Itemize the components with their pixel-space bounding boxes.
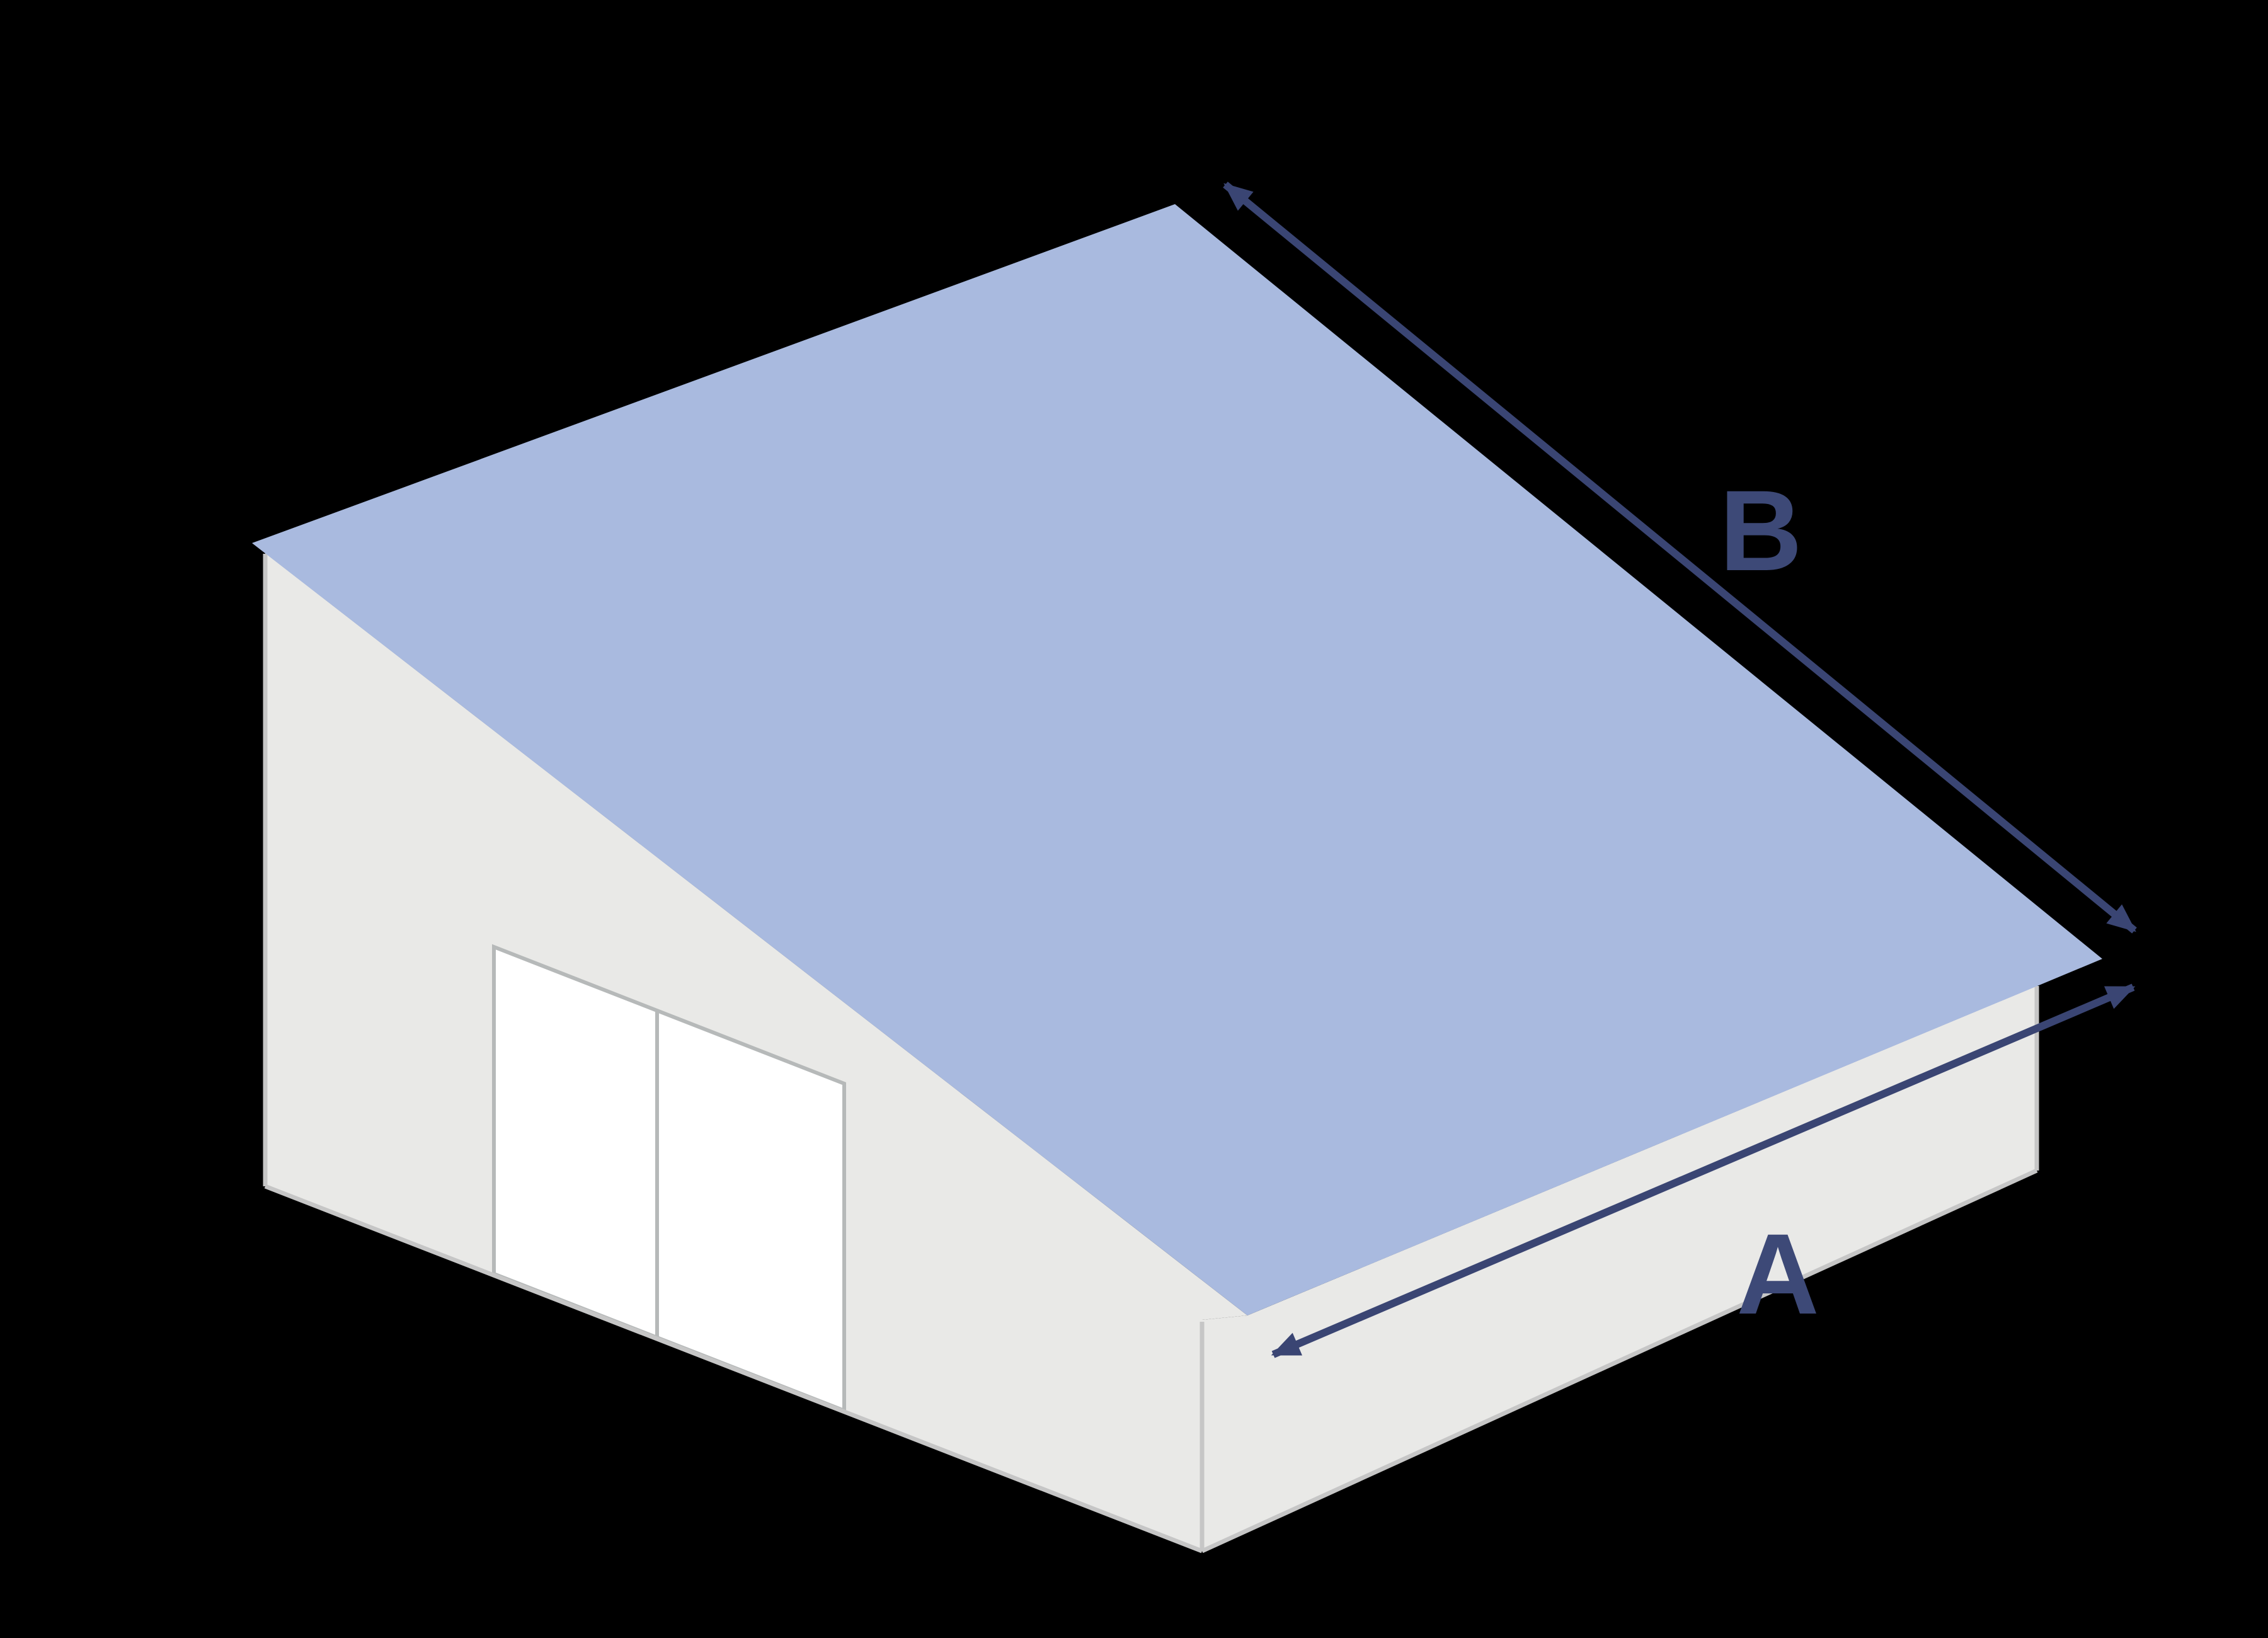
label-b: B: [1719, 466, 1802, 595]
building-roof-diagram: BA: [0, 0, 2268, 1638]
diagram-stage: BA: [0, 0, 2268, 1638]
label-a: A: [1736, 1210, 1819, 1338]
